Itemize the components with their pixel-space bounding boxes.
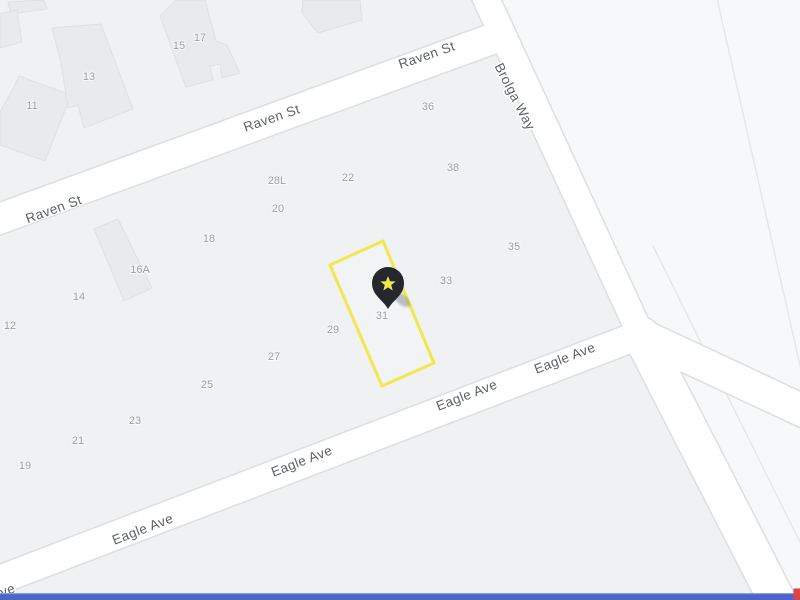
parcel-number-28l: 28L [268, 175, 286, 187]
parcel-number-18: 18 [203, 233, 215, 245]
parcel-number-13: 13 [83, 71, 95, 83]
parcel-number-25: 25 [201, 379, 213, 391]
parcel-number-27: 27 [268, 351, 280, 363]
parcel-number-33: 33 [440, 275, 452, 287]
parcel-number-16a: 16A [130, 264, 150, 276]
parcel-number-23: 23 [129, 415, 141, 427]
parcel-number-12: 12 [4, 320, 16, 332]
map-canvas[interactable]: Raven StRaven StRaven StBrolga WayveEagl… [0, 0, 800, 600]
parcel-number-22: 22 [342, 172, 354, 184]
parcel-number-31: 31 [376, 310, 388, 322]
parcel-number-17: 17 [194, 32, 206, 44]
parcel-number-29: 29 [327, 324, 339, 336]
parcel-number-20: 20 [272, 203, 284, 215]
parcel-number-35: 35 [508, 241, 520, 253]
parcel-number-19: 19 [19, 460, 31, 472]
bottom-boundary-bar-edge [0, 593, 800, 594]
parcel-number-21: 21 [72, 435, 84, 447]
parcel-number-14: 14 [73, 291, 85, 303]
parcel-number-36: 36 [422, 101, 434, 113]
bottom-boundary-bar [0, 594, 800, 600]
parcel-number-11: 11 [26, 100, 37, 112]
map-svg: Raven StRaven StRaven StBrolga WayveEagl… [0, 0, 800, 600]
parcel-number-38: 38 [447, 162, 459, 174]
parcel-number-15: 15 [173, 40, 185, 52]
corner-marker [794, 589, 800, 600]
